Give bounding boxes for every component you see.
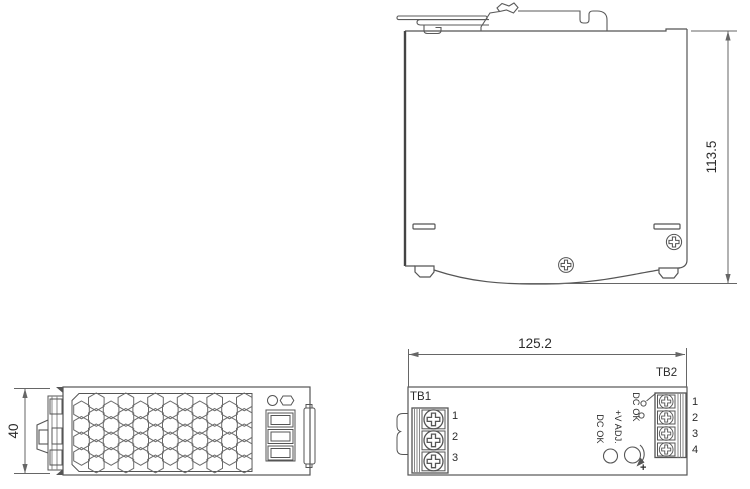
dim-width-40: 40 — [4, 406, 24, 456]
hole-hex — [280, 396, 294, 405]
tb1-pin-1: 1 — [452, 410, 458, 422]
dim-width-125-2: 125.2 — [505, 336, 565, 351]
tb1-pin-3: 3 — [452, 452, 458, 464]
tb1-label: TB1 — [410, 391, 431, 403]
vent-honeycomb — [74, 393, 252, 473]
din-clip-end — [37, 420, 48, 453]
mechanical-drawing-page: 113.5 40 125.2 TB1 TB2 1 2 3 1 2 3 4 DC … — [0, 0, 750, 489]
end-plate — [48, 396, 63, 470]
tb2-label: TB2 — [656, 367, 677, 379]
tb1-pin-2: 2 — [452, 431, 458, 443]
contact-leader — [647, 394, 656, 402]
clip-bracket — [397, 414, 408, 455]
foot-left — [415, 266, 434, 277]
vent-slot-right — [654, 224, 680, 229]
v-adj-label: +V ADJ. — [608, 402, 628, 452]
tb2-terminal-block — [655, 393, 686, 458]
hole-round — [268, 396, 278, 406]
terminal-block-top — [266, 410, 295, 461]
adjust-plus-label: + — [640, 462, 646, 474]
foot-right — [659, 268, 678, 278]
tb2-pin-4: 4 — [692, 444, 698, 456]
dc-ok-led-label: DC OK — [590, 404, 610, 454]
din-rail-clip — [397, 3, 607, 34]
tb2-pin-2: 2 — [692, 412, 698, 424]
side-view — [397, 3, 687, 284]
tb1-terminal-block — [412, 408, 448, 473]
tb2-pin-3: 3 — [692, 428, 698, 440]
screw-center — [559, 258, 574, 273]
dc-ok-contact-label: DC OK — [626, 382, 646, 432]
corner-wedge-top — [56, 387, 63, 393]
dim-height-113-5: 113.5 — [702, 132, 722, 182]
screw-right — [666, 234, 681, 249]
vent-slot-left — [413, 224, 435, 229]
end-view — [37, 387, 315, 475]
tb2-pin-1: 1 — [692, 396, 698, 408]
